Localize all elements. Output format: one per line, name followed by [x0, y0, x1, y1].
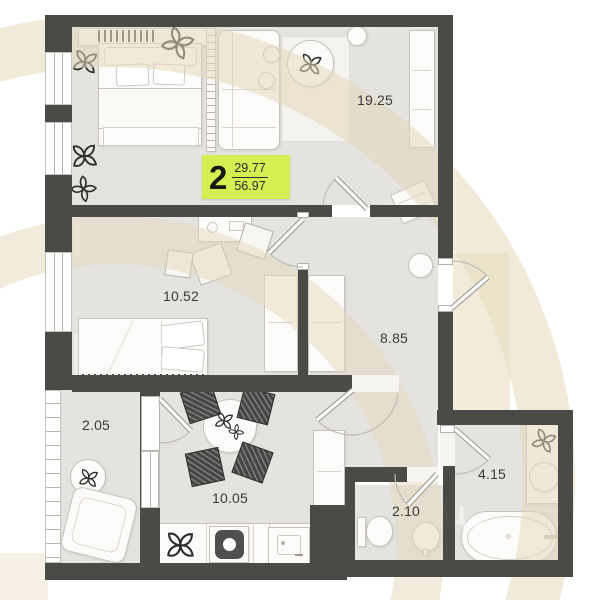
wall-right-seg2 — [438, 310, 453, 425]
bed-single — [78, 318, 208, 376]
balcony-door-panel — [141, 396, 160, 451]
wall-bedroom-bottom — [72, 375, 352, 392]
wall-left-seg2 — [45, 105, 72, 122]
wc-sink-spout — [423, 549, 428, 556]
plant-icon — [70, 40, 100, 82]
window-bedroom — [45, 252, 72, 332]
wall-kitchen-shaft — [310, 505, 352, 565]
wall-wc-bathroom — [443, 465, 455, 565]
wardrobe — [409, 30, 435, 148]
wc-sink — [412, 522, 440, 552]
floor-plan: Ц 8 — [0, 0, 600, 600]
closet-bedroom — [264, 275, 298, 372]
kitchen-sink — [268, 527, 310, 564]
room-label-wc: 2.10 — [392, 503, 420, 519]
toilet — [357, 517, 366, 547]
wall-bathroom-right — [558, 410, 573, 577]
headboard-hatch — [98, 30, 156, 42]
doorway-kitchen — [352, 375, 399, 392]
floor-lamp — [258, 72, 275, 89]
stool — [164, 249, 193, 278]
wall-mid-left — [45, 205, 332, 217]
room-label-bedroom: 10.52 — [163, 288, 199, 304]
doorjamb-entrance-bottom — [438, 305, 453, 312]
plant-icon — [159, 523, 201, 565]
shelf-divider — [206, 28, 216, 152]
window-living-1 — [45, 52, 72, 105]
side-table — [347, 26, 367, 46]
wall-top — [45, 15, 453, 27]
doorway-living — [332, 205, 370, 217]
wall-right-seg1 — [438, 15, 453, 263]
stove — [209, 526, 249, 563]
plant-icon — [77, 466, 100, 489]
wall-bathroom-top — [437, 410, 573, 425]
wall-bottom-left — [45, 563, 347, 580]
plant-icon — [297, 50, 324, 77]
wall-mid-right — [370, 205, 438, 217]
watermark-blob-corner — [0, 553, 48, 600]
badge-areas: 29.77 56.97 — [232, 160, 267, 195]
window-loggia-glazing — [45, 390, 61, 563]
bathtub — [461, 511, 557, 563]
badge-room-count: 2 — [209, 161, 227, 194]
badge-living-area: 29.77 — [232, 160, 267, 178]
badge-total-area: 56.97 — [232, 178, 267, 194]
fridge — [313, 430, 345, 508]
window-living-2 — [45, 122, 72, 175]
doorjamb-bedroom-top — [297, 212, 309, 218]
balcony-window — [141, 451, 160, 508]
pouf — [408, 253, 433, 278]
doorway-bathroom — [440, 432, 455, 466]
room-label-kitchen: 10.05 — [212, 490, 248, 506]
wall-left-seg4 — [45, 332, 72, 390]
toilet-bowl — [366, 516, 393, 547]
dining-chair — [185, 447, 225, 487]
room-label-hallway: 8.85 — [380, 330, 408, 346]
curtain — [74, 220, 80, 256]
wall-bottom-right — [345, 560, 573, 577]
doorway-wc — [407, 467, 438, 482]
doorway-entrance — [438, 263, 453, 310]
watermark-blob-entrance — [453, 253, 510, 410]
listing-badge: 2 29.77 56.97 — [202, 155, 290, 199]
doorjamb-bedroom-bottom — [297, 263, 309, 270]
doorjamb-entrance-top — [438, 258, 453, 265]
room-label-living: 19.25 — [357, 92, 393, 108]
bath-sink — [529, 462, 559, 492]
closet-hallway — [308, 275, 345, 372]
room-label-bathroom: 4.15 — [478, 466, 506, 482]
wall-closet-divider — [298, 268, 308, 377]
floor-lamp — [263, 46, 280, 63]
room-label-loggia: 2.05 — [82, 417, 110, 433]
doorjamb-bathroom — [440, 425, 455, 433]
wall-left-seg1 — [45, 15, 72, 52]
